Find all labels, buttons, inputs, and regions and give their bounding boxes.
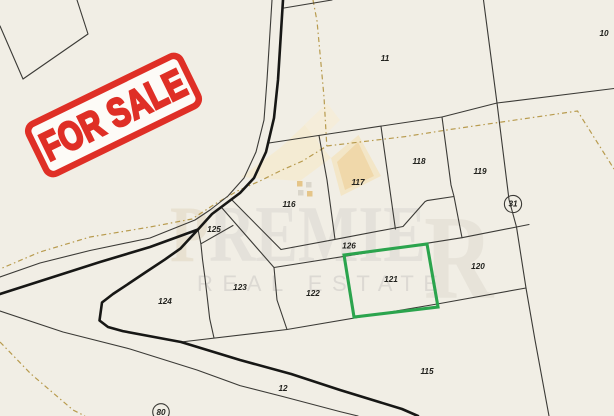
svg-text:119: 119 — [473, 167, 486, 176]
svg-text:11: 11 — [381, 54, 390, 63]
svg-text:80: 80 — [156, 408, 166, 416]
svg-text:123: 123 — [233, 283, 247, 292]
svg-text:115: 115 — [420, 367, 433, 376]
svg-text:118: 118 — [412, 157, 425, 166]
svg-text:116: 116 — [282, 200, 295, 209]
svg-text:124: 124 — [158, 297, 172, 306]
svg-text:10: 10 — [599, 29, 609, 38]
svg-text:126: 126 — [342, 242, 356, 251]
svg-text:122: 122 — [306, 289, 320, 298]
svg-text:125: 125 — [207, 225, 221, 234]
svg-text:120: 120 — [471, 262, 485, 271]
svg-text:31: 31 — [508, 200, 518, 209]
svg-text:12: 12 — [278, 384, 288, 393]
svg-text:117: 117 — [351, 178, 364, 187]
svg-text:121: 121 — [384, 275, 398, 284]
